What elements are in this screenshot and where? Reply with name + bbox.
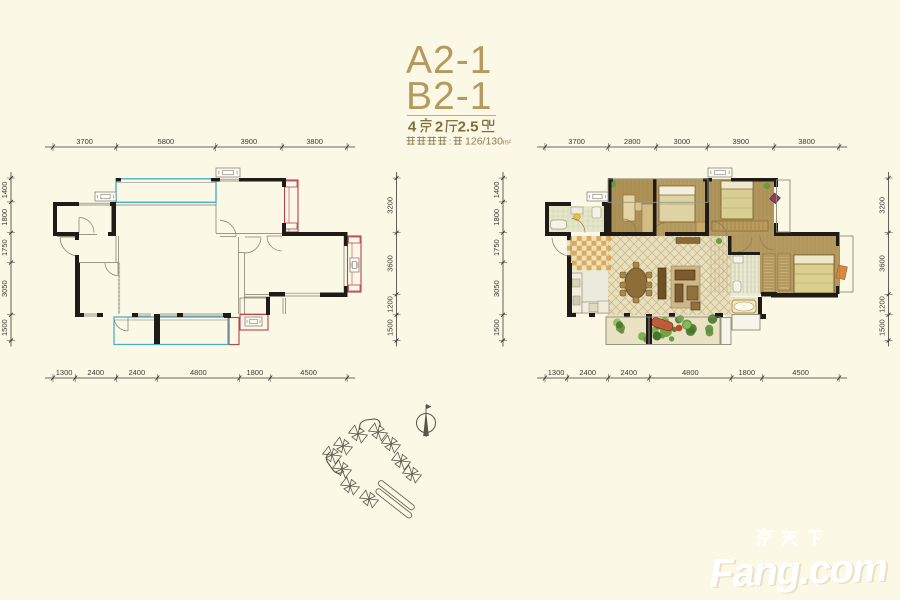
svg-text:2400: 2400 — [87, 368, 104, 377]
svg-text:1200: 1200 — [386, 296, 395, 313]
svg-text:B2-1: B2-1 — [406, 75, 492, 118]
svg-text:1500: 1500 — [878, 319, 887, 336]
svg-text:1500: 1500 — [492, 319, 501, 336]
svg-text:2400: 2400 — [128, 368, 145, 377]
svg-text:5800: 5800 — [158, 137, 175, 146]
svg-text:3000: 3000 — [674, 137, 691, 146]
svg-text:2800: 2800 — [624, 137, 641, 146]
svg-text:m²: m² — [503, 140, 512, 147]
svg-text:2400: 2400 — [620, 368, 637, 377]
svg-text:3200: 3200 — [386, 197, 395, 214]
svg-text:1800: 1800 — [0, 209, 9, 226]
svg-text:1750: 1750 — [0, 239, 9, 256]
svg-text:2: 2 — [435, 119, 443, 136]
svg-text:1500: 1500 — [386, 319, 395, 336]
svg-text:3900: 3900 — [732, 137, 749, 146]
svg-text:1750: 1750 — [492, 239, 501, 256]
svg-text:4800: 4800 — [190, 368, 207, 377]
svg-text:3700: 3700 — [568, 137, 585, 146]
svg-text:3600: 3600 — [386, 255, 395, 272]
svg-text:Fang.com: Fang.com — [709, 546, 887, 596]
svg-text:3600: 3600 — [878, 255, 887, 272]
svg-text:3050: 3050 — [492, 280, 501, 297]
svg-text:4800: 4800 — [682, 368, 699, 377]
svg-text:4: 4 — [408, 119, 417, 136]
svg-text:4500: 4500 — [792, 368, 809, 377]
svg-text:1400: 1400 — [492, 182, 501, 199]
svg-text:1300: 1300 — [56, 368, 73, 377]
svg-text:3800: 3800 — [306, 137, 323, 146]
svg-text:3900: 3900 — [240, 137, 257, 146]
svg-text:1300: 1300 — [548, 368, 565, 377]
svg-text:1800: 1800 — [738, 368, 755, 377]
svg-text:3050: 3050 — [0, 280, 9, 297]
svg-text:1400: 1400 — [0, 182, 9, 199]
svg-text:1200: 1200 — [878, 296, 887, 313]
svg-text:3700: 3700 — [76, 137, 93, 146]
svg-text:1800: 1800 — [246, 368, 263, 377]
svg-text:4500: 4500 — [300, 368, 317, 377]
svg-text:1500: 1500 — [0, 319, 9, 336]
svg-text:1800: 1800 — [492, 209, 501, 226]
svg-text:2.5: 2.5 — [458, 119, 479, 136]
svg-text:3800: 3800 — [798, 137, 815, 146]
svg-text:126/130: 126/130 — [465, 136, 503, 148]
svg-text:3200: 3200 — [878, 197, 887, 214]
svg-text:2400: 2400 — [579, 368, 596, 377]
svg-text::: : — [449, 137, 452, 147]
